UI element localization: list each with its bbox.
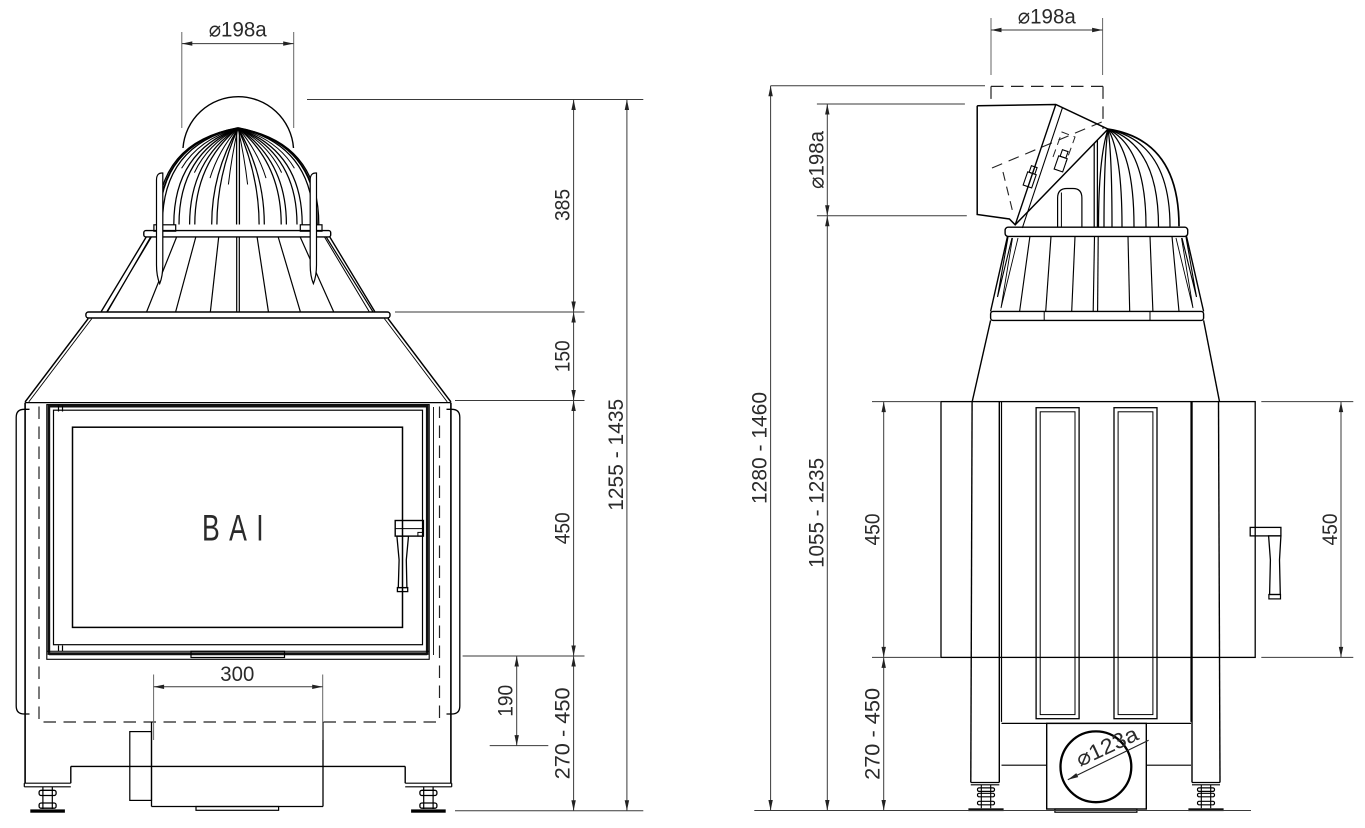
svg-text:150: 150 bbox=[551, 340, 575, 372]
svg-text:1255 - 1435: 1255 - 1435 bbox=[604, 399, 628, 511]
svg-text:300: 300 bbox=[220, 662, 254, 686]
svg-text:⌀198a: ⌀198a bbox=[804, 131, 828, 189]
svg-text:450: 450 bbox=[551, 512, 575, 544]
svg-text:⌀198a: ⌀198a bbox=[209, 18, 267, 42]
svg-text:1280 - 1460: 1280 - 1460 bbox=[748, 392, 772, 504]
svg-text:450: 450 bbox=[1318, 513, 1342, 545]
svg-text:1055 - 1235: 1055 - 1235 bbox=[804, 458, 828, 568]
svg-text:450: 450 bbox=[861, 513, 885, 545]
svg-text:190: 190 bbox=[494, 685, 518, 717]
svg-text:BAI: BAI bbox=[202, 507, 273, 548]
svg-text:385: 385 bbox=[551, 189, 575, 221]
svg-text:⌀198a: ⌀198a bbox=[1018, 5, 1076, 29]
svg-text:270 - 450: 270 - 450 bbox=[551, 687, 575, 779]
svg-text:270 - 450: 270 - 450 bbox=[861, 688, 885, 780]
